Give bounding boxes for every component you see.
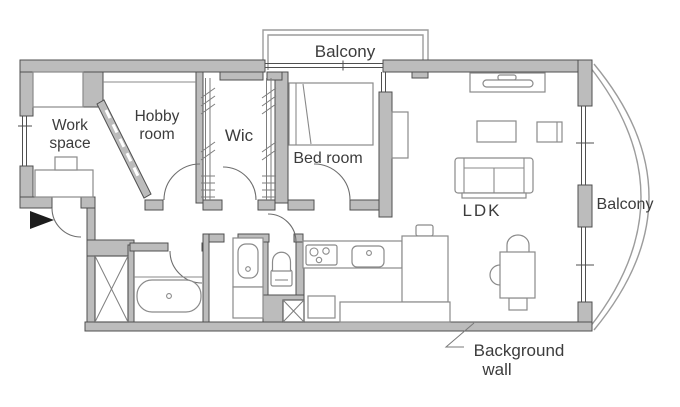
kitchen [303,225,450,322]
wic-rail-right [262,78,276,200]
hobby-label-line1: Hobby [135,108,180,125]
coffee-table [477,121,516,142]
background-wall-label-line1: Background [474,341,565,360]
dining-chair-left [490,265,500,285]
workspace-label-line2: space [49,135,90,152]
bath-door-arc [170,251,202,283]
dining-set [490,235,535,310]
entrance-arrow-icon [30,211,54,229]
washing-machine [233,287,263,318]
balcony-right-label: Balcony [597,196,654,213]
workspace-label-line1: Work [52,117,88,134]
kitchen-sink [352,246,384,267]
toilet-door-arc [268,214,296,242]
fridge [308,296,335,318]
tv [483,80,533,87]
floor-plan-page: Balcony Work space Hobby room Wic Bed ro… [0,0,680,407]
cabinet [392,112,408,158]
wic-door-arc [223,167,256,200]
desk [35,170,93,197]
hobby-door-arc [164,164,200,200]
toilet [271,252,292,286]
ldk-label: LDK [462,201,501,220]
room-bed [289,83,373,145]
floor-plan-canvas: Balcony Work space Hobby room Wic Bed ro… [0,0,680,407]
sofa [455,158,533,198]
back-counter [340,302,450,322]
hobby-label-line2: room [139,126,174,143]
kitchen-island [402,236,448,302]
bedroom-label: Bed room [293,150,362,167]
background-wall-label-line2: wall [481,360,511,379]
dining-chair-top [507,235,529,252]
counter-chair [416,225,433,236]
wic-label: Wic [225,126,254,145]
dining-table [500,252,535,298]
bathtub [137,280,201,312]
bed [289,83,373,145]
side-table [537,122,562,142]
monitor [55,157,77,170]
entrance-door-arc [52,208,81,237]
dining-chair-bottom [509,298,527,310]
entrance [30,211,54,229]
workspace-closet [33,72,83,107]
washbasin-bowl [238,244,258,278]
balcony-top-label: Balcony [315,42,376,61]
bedroom-door-arc [314,164,350,200]
